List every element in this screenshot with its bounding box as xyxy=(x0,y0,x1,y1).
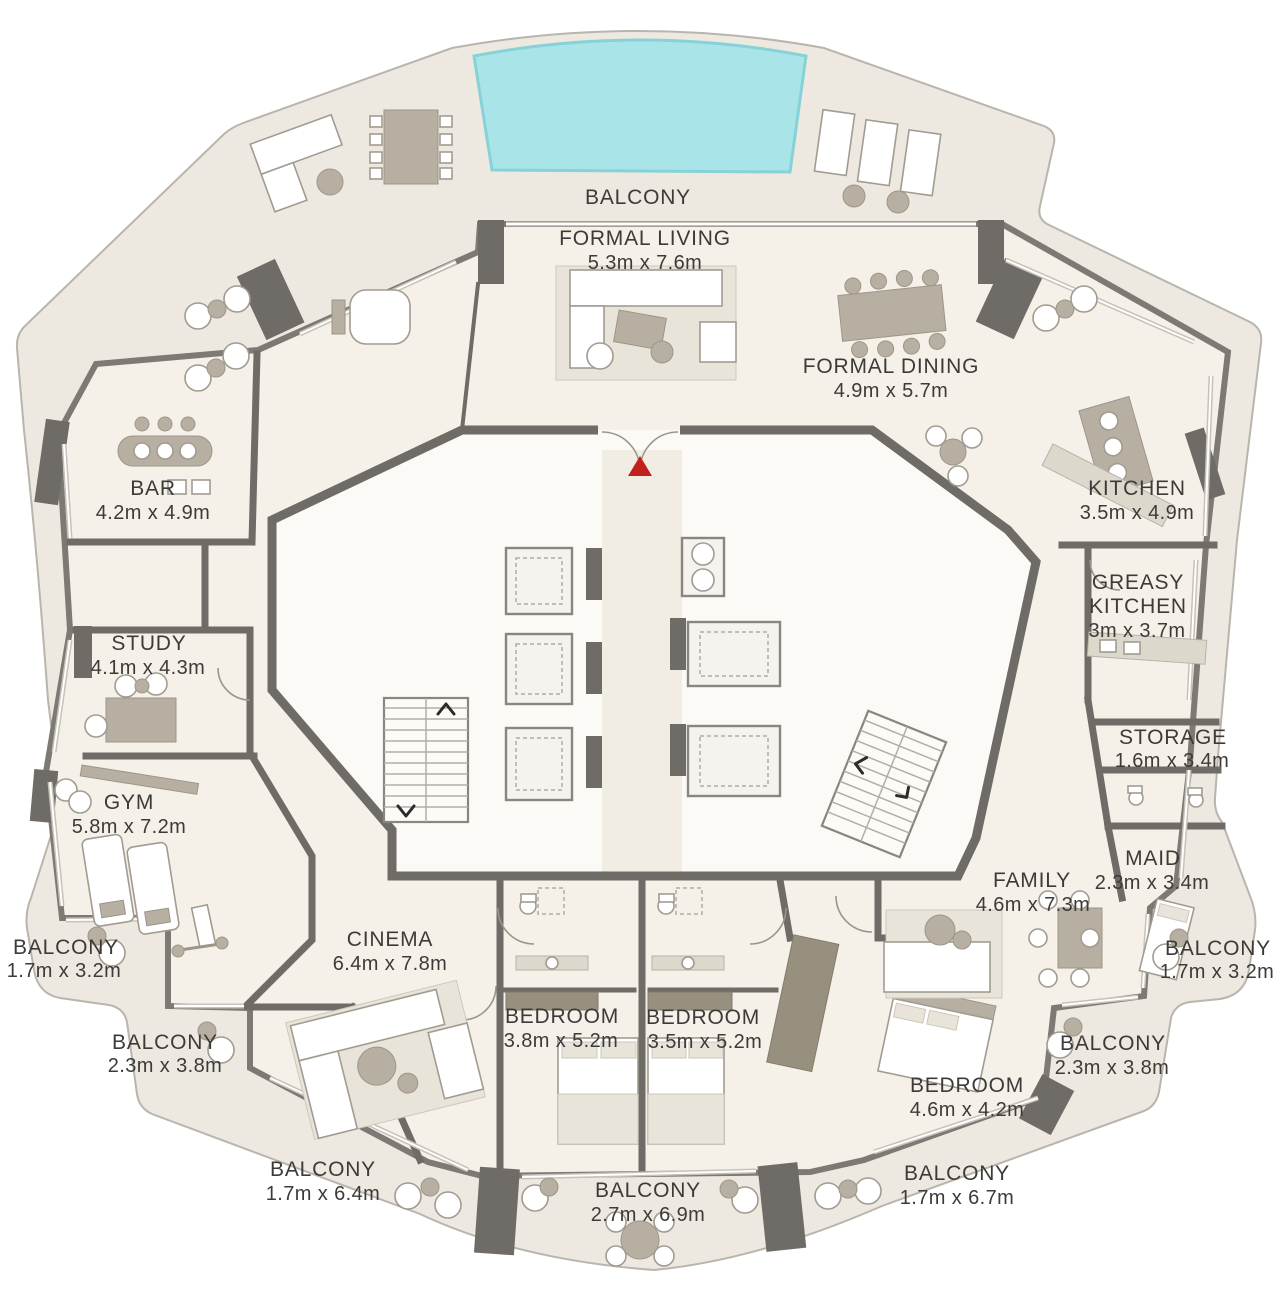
svg-text:FORMAL DINING: FORMAL DINING xyxy=(803,355,979,378)
svg-text:BAR: BAR xyxy=(130,477,176,500)
svg-text:BALCONY: BALCONY xyxy=(904,1162,1010,1185)
svg-text:GREASY: GREASY xyxy=(1092,571,1184,594)
svg-text:1.7m x 3.2m: 1.7m x 3.2m xyxy=(1160,961,1274,983)
svg-text:4.1m x 4.3m: 4.1m x 4.3m xyxy=(91,657,205,679)
svg-text:BALCONY: BALCONY xyxy=(270,1158,376,1181)
svg-text:2.3m x 3.8m: 2.3m x 3.8m xyxy=(108,1055,222,1077)
svg-text:2.7m x 6.9m: 2.7m x 6.9m xyxy=(591,1204,705,1226)
svg-text:BALCONY: BALCONY xyxy=(112,1031,218,1054)
greasy-kitchen-label: GREASY KITCHEN 3m x 3.7m xyxy=(1089,571,1187,642)
svg-text:KITCHEN: KITCHEN xyxy=(1089,595,1187,618)
svg-text:BALCONY: BALCONY xyxy=(13,936,119,959)
svg-text:3.5m x 5.2m: 3.5m x 5.2m xyxy=(648,1031,762,1053)
svg-text:STORAGE: STORAGE xyxy=(1119,726,1227,749)
svg-text:4.2m x 4.9m: 4.2m x 4.9m xyxy=(96,502,210,524)
svg-text:FORMAL LIVING: FORMAL LIVING xyxy=(559,227,731,250)
svg-text:MAID: MAID xyxy=(1125,847,1181,870)
floor-plan-page: BALCONY FORMAL LIVING 5.3m x 7.6m FORMAL… xyxy=(0,0,1280,1297)
elevator-bank-left xyxy=(506,548,602,800)
svg-text:FAMILY: FAMILY xyxy=(993,869,1071,892)
svg-text:BEDROOM: BEDROOM xyxy=(646,1006,760,1029)
svg-text:1.7m x 6.4m: 1.7m x 6.4m xyxy=(266,1183,380,1205)
svg-text:1.7m x 6.7m: 1.7m x 6.7m xyxy=(900,1187,1014,1209)
svg-text:GYM: GYM xyxy=(104,791,154,814)
svg-text:1.6m x 3.4m: 1.6m x 3.4m xyxy=(1115,750,1229,772)
svg-text:BALCONY: BALCONY xyxy=(595,1179,701,1202)
stair-left xyxy=(384,698,468,822)
service-core xyxy=(272,430,1036,876)
svg-text:STUDY: STUDY xyxy=(111,632,186,655)
svg-text:BEDROOM: BEDROOM xyxy=(910,1074,1024,1097)
svg-text:5.8m x 7.2m: 5.8m x 7.2m xyxy=(72,816,186,838)
svg-text:BALCONY: BALCONY xyxy=(1165,937,1271,960)
svg-text:4.6m x 7.3m: 4.6m x 7.3m xyxy=(976,894,1090,916)
svg-text:4.6m x 4.2m: 4.6m x 4.2m xyxy=(910,1099,1024,1121)
svg-text:BEDROOM: BEDROOM xyxy=(505,1005,619,1028)
svg-text:3.5m x 4.9m: 3.5m x 4.9m xyxy=(1080,502,1194,524)
svg-text:3.8m x 5.2m: 3.8m x 5.2m xyxy=(504,1030,618,1052)
svg-text:3m x 3.7m: 3m x 3.7m xyxy=(1089,620,1186,642)
svg-text:2.3m x 3.8m: 2.3m x 3.8m xyxy=(1055,1057,1169,1079)
floor-plan-canvas: BALCONY FORMAL LIVING 5.3m x 7.6m FORMAL… xyxy=(0,0,1280,1297)
formal-living-furniture xyxy=(556,266,736,380)
svg-text:6.4m x 7.8m: 6.4m x 7.8m xyxy=(333,953,447,975)
balcony-top-label: BALCONY xyxy=(585,186,691,209)
svg-text:KITCHEN: KITCHEN xyxy=(1088,477,1186,500)
svg-text:1.7m x 3.2m: 1.7m x 3.2m xyxy=(7,960,121,982)
svg-text:4.9m x 5.7m: 4.9m x 5.7m xyxy=(834,380,948,402)
svg-text:CINEMA: CINEMA xyxy=(347,928,433,951)
svg-text:5.3m x 7.6m: 5.3m x 7.6m xyxy=(588,252,702,274)
svg-text:BALCONY: BALCONY xyxy=(1060,1032,1166,1055)
svg-text:2.3m x 3.4m: 2.3m x 3.4m xyxy=(1095,872,1209,894)
pool xyxy=(474,40,806,172)
